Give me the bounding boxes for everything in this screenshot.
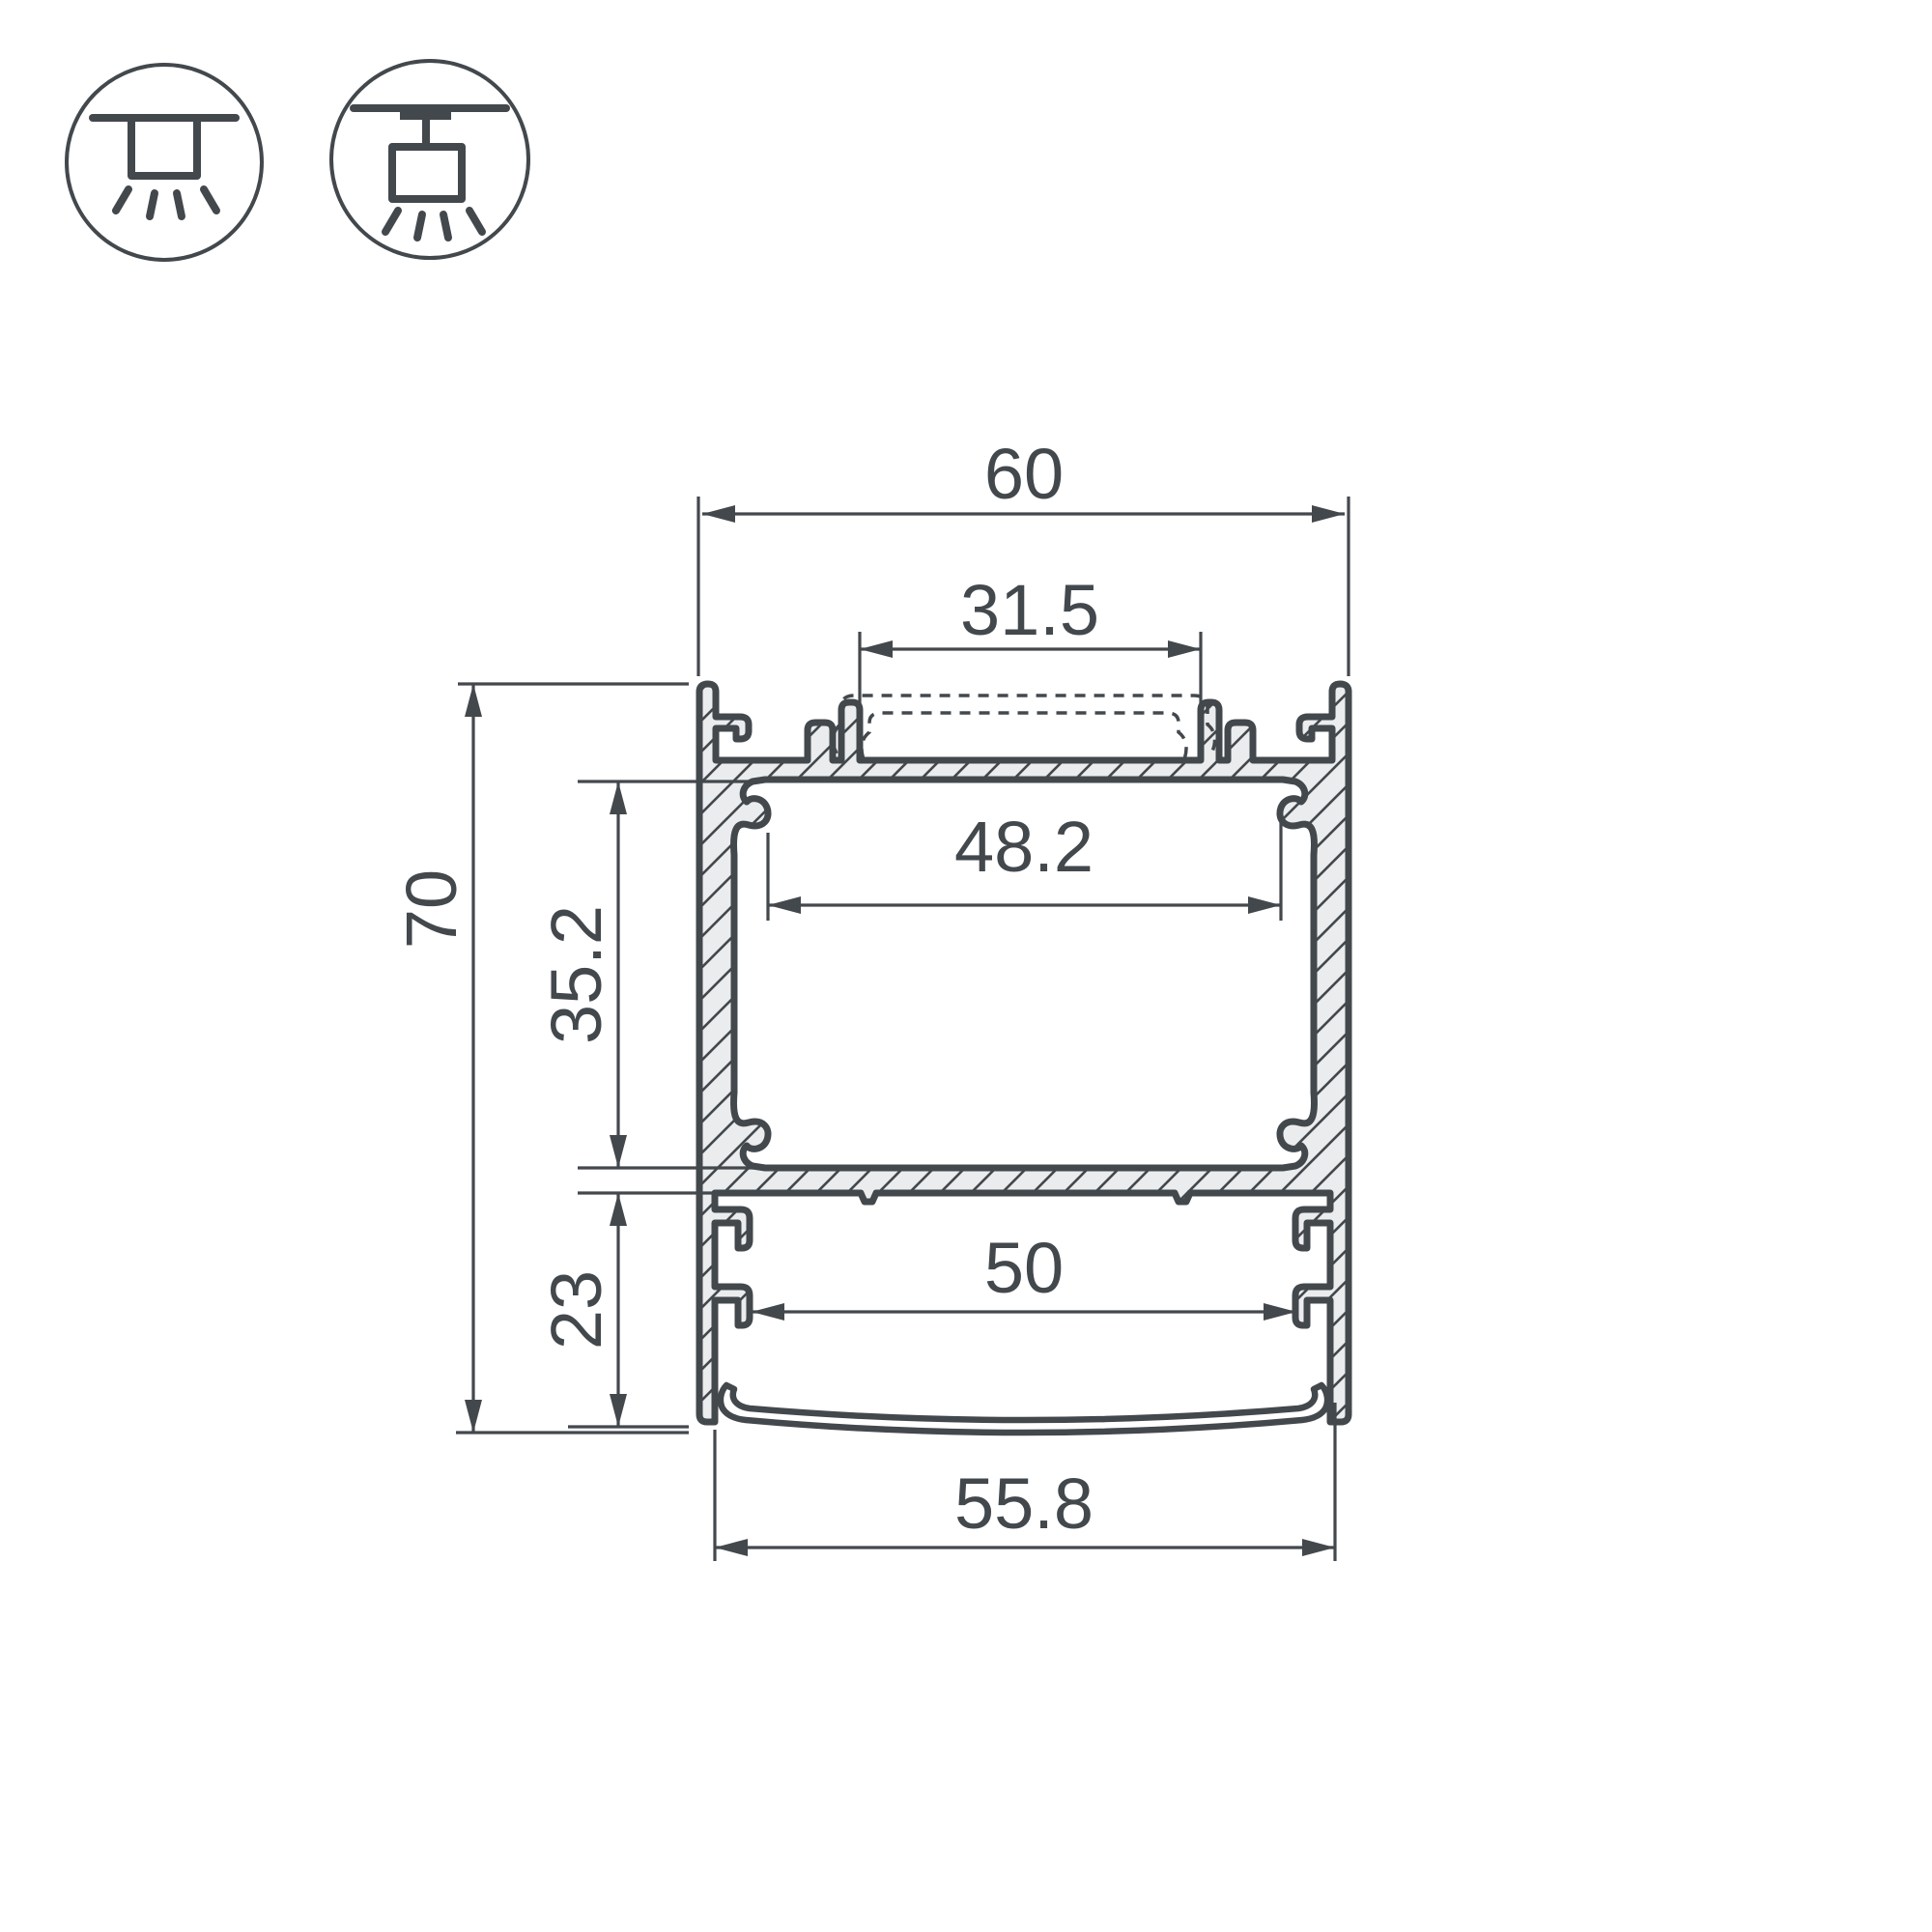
arrowhead [465,1400,482,1433]
fixture-box [131,118,197,176]
arrowhead [715,1539,748,1556]
surface-ceiling-mount-icon [67,65,262,260]
dimension-label: 55.8 [954,1463,1094,1544]
dimension-label: 35.2 [536,905,616,1044]
arrowhead [702,505,735,523]
icon-circle [67,65,262,260]
dimension-lower-chamber-width: 50 [752,1228,1296,1321]
arrowhead [1248,896,1281,914]
icon-circle [331,61,528,258]
arrowhead [610,1193,627,1226]
arrowhead [610,1135,627,1168]
dimension-label: 23 [536,1270,616,1350]
profile-cross-section [676,667,1372,1439]
drawing-svg: 60 31.5 48.2 35.2 70 [0,0,1932,1932]
fixture-box [392,147,462,199]
arrowhead [610,781,627,814]
arrowhead [768,896,801,914]
dimension-label: 60 [984,434,1064,514]
arrowhead [610,1394,627,1427]
dimension-upper-chamber-width: 48.2 [768,807,1281,921]
light-rays [116,189,216,216]
dimension-label: 70 [391,869,471,949]
mount-bracket [400,106,451,120]
arrowhead [1168,640,1201,658]
arrowhead [465,684,482,717]
arrowhead [1312,505,1345,523]
technical-drawing-page: 60 31.5 48.2 35.2 70 [0,0,1932,1932]
dimension-label: 31.5 [960,570,1099,650]
arrowhead [752,1303,784,1321]
hidden-mount-plate [834,696,1215,759]
light-rays [385,211,482,238]
dimension-label: 48.2 [954,807,1094,887]
pendant-suspended-mount-icon [331,61,528,258]
dimension-label: 50 [984,1228,1064,1308]
diffuser-lens [721,1385,1327,1433]
arrowhead [1302,1539,1335,1556]
dimensions: 60 31.5 48.2 35.2 70 [391,434,1349,1561]
arrowhead [860,640,893,658]
arrowhead [1264,1303,1296,1321]
